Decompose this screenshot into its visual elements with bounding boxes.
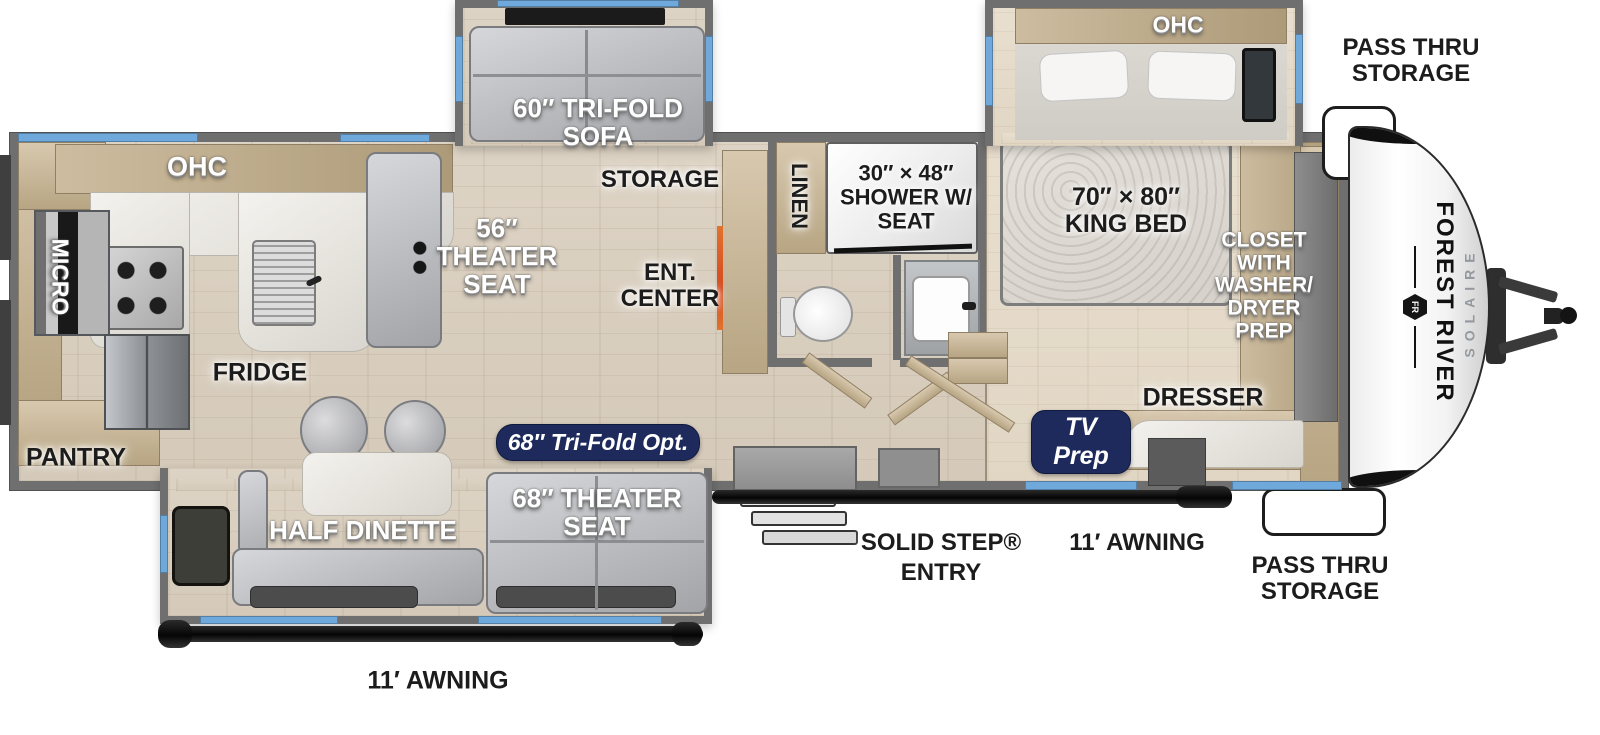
bedroom-step-box <box>1148 438 1206 486</box>
label-kitchen-ohc: OHC <box>167 152 227 181</box>
window-strip <box>705 36 713 102</box>
pillow <box>1147 50 1237 101</box>
window-strip <box>18 133 198 142</box>
brand-model: SOLAIRE <box>1462 246 1477 357</box>
hitch-ball <box>1560 307 1577 324</box>
label-linen: LINEN <box>787 163 811 229</box>
label-pantry: PANTRY <box>26 445 126 472</box>
label-bedroom-ohc: OHC <box>1152 13 1203 38</box>
tv-prep-badge: TV Prep <box>1031 410 1131 474</box>
label-dresser: DRESSER <box>1143 385 1264 412</box>
hitch-arm <box>1498 276 1559 303</box>
entry-side-box <box>878 448 940 488</box>
label-half-dinette: HALF DINETTE <box>269 516 457 544</box>
pass-thru-door-bottom <box>1262 488 1386 536</box>
label-shower: 30″ × 48″ SHOWER W/ SEAT <box>840 161 972 232</box>
label-theater-seat-68: 68″ THEATER SEAT <box>512 484 681 540</box>
label-king-bed: 70″ × 80″ KING BED <box>1065 184 1187 238</box>
label-fridge: FRIDGE <box>213 360 307 387</box>
sofa-slide-tv <box>505 8 665 25</box>
label-solid-step-entry: SOLID STEP® ENTRY <box>861 528 1021 588</box>
bath-faucet-icon <box>962 302 976 310</box>
window-strip <box>497 0 679 7</box>
cap-accent-top <box>1348 126 1490 144</box>
label-pass-thru-bottom: PASS THRU STORAGE <box>1252 553 1389 605</box>
entry-platform <box>733 446 857 491</box>
dinette-table <box>302 452 452 516</box>
window-strip <box>455 36 463 102</box>
dinette-slide-window <box>172 506 230 586</box>
floor-mat <box>496 586 676 608</box>
floor-plan-canvas: FR FOREST RIVER SOLAIRE 68″ Tri-Fold Opt… <box>0 0 1600 735</box>
brand-monogram: FR <box>1410 301 1420 313</box>
rear-bumper <box>0 155 11 260</box>
stove <box>100 246 184 330</box>
pillow <box>1039 50 1129 103</box>
label-pass-thru-top: PASS THRU STORAGE <box>1343 35 1480 87</box>
awning-end-cap <box>1176 486 1232 508</box>
floor-mat <box>250 586 418 608</box>
window-strip <box>340 134 430 142</box>
label-tri-fold-sofa: 60″ TRI-FOLD SOFA <box>513 94 683 150</box>
label-micro: MICRO <box>48 239 73 316</box>
step <box>751 511 847 526</box>
label-theater-seat-56: 56″ THEATER SEAT <box>437 214 558 298</box>
sofa-back-edge <box>473 74 701 77</box>
bedroom-window <box>1242 48 1276 122</box>
window-strip <box>985 36 993 106</box>
toilet-bowl <box>793 286 853 342</box>
label-awning-camp-side: 11′ AWNING <box>367 668 508 695</box>
entertainment-center <box>722 150 768 374</box>
refrigerator <box>104 334 190 430</box>
bedroom-step <box>948 358 1008 384</box>
step <box>762 530 858 545</box>
label-ent-center: ENT. CENTER <box>621 260 720 312</box>
label-closet: CLOSET WITH WASHER/ DRYER PREP <box>1215 229 1313 342</box>
rear-bumper <box>0 300 11 425</box>
cap-accent-bottom <box>1348 470 1490 488</box>
bath-wall-vanity <box>893 255 901 360</box>
window-strip <box>1295 34 1303 104</box>
brand-divider <box>1414 246 1416 288</box>
brand-divider <box>1414 326 1416 368</box>
window-strip <box>478 616 662 624</box>
bedroom-step <box>948 332 1008 358</box>
window-strip <box>1232 481 1342 490</box>
window-strip <box>160 515 168 573</box>
window-strip <box>1025 481 1137 490</box>
window-strip <box>200 616 338 624</box>
hitch <box>1486 268 1574 364</box>
bedroom-ohc-cabinet <box>1015 8 1287 44</box>
hitch-arm <box>1498 328 1559 355</box>
brand-manufacturer: FOREST RIVER <box>1431 201 1457 402</box>
awning-rail-camp-side <box>163 626 703 642</box>
theater-seat-56 <box>366 152 442 348</box>
tri-fold-option-badge: 68″ Tri-Fold Opt. <box>496 424 700 461</box>
awning-end-cap <box>672 622 702 646</box>
awning-rail-door-side <box>712 490 1232 504</box>
awning-end-cap <box>158 620 192 648</box>
label-storage: STORAGE <box>601 167 719 193</box>
label-awning-door-side: 11′ AWNING <box>1069 530 1205 556</box>
